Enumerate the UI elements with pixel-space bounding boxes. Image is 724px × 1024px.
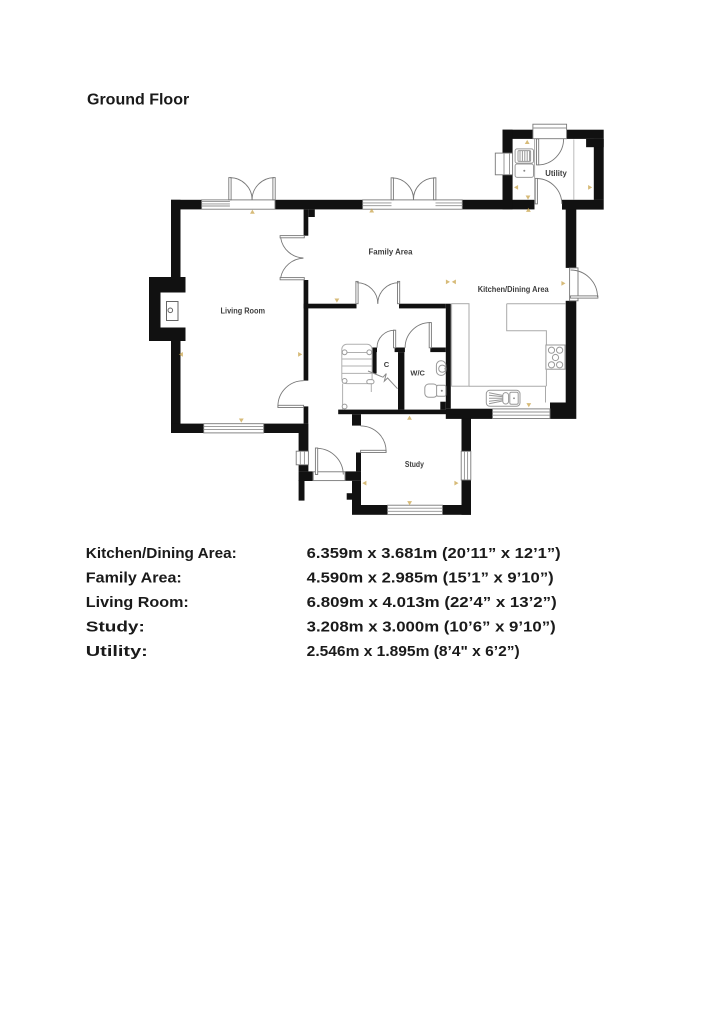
svg-text:Kitchen/Dining Area: Kitchen/Dining Area [478,284,549,294]
svg-text:2.546m x 1.895m (8’4" x 6’2”): 2.546m x 1.895m (8’4" x 6’2”) [307,643,520,660]
svg-text:4.590m x 2.985m (15’1” x 9’10”: 4.590m x 2.985m (15’1” x 9’10”) [307,570,554,587]
svg-text:3.208m x 3.000m (10’6” x 9’10”: 3.208m x 3.000m (10’6” x 9’10”) [307,618,556,635]
svg-text:Living Room:: Living Room: [86,594,189,611]
svg-text:Kitchen/Dining Area:: Kitchen/Dining Area: [86,545,237,562]
svg-text:6.809m x 4.013m (22’4” x 13’2”: 6.809m x 4.013m (22’4” x 13’2”) [307,594,557,611]
svg-text:Utility:: Utility: [86,643,148,660]
svg-text:Family Area:: Family Area: [86,570,182,587]
svg-text:Family Area: Family Area [369,246,413,256]
svg-text:Study: Study [405,459,424,469]
svg-text:Study:: Study: [86,618,145,635]
svg-text:Utility: Utility [545,168,567,178]
svg-text:W/C: W/C [410,369,425,378]
svg-text:Ground Floor: Ground Floor [87,92,189,109]
svg-text:6.359m x 3.681m (20’11” x 12’1: 6.359m x 3.681m (20’11” x 12’1”) [307,545,561,562]
svg-text:Living Room: Living Room [221,305,266,315]
svg-text:C: C [384,360,390,369]
